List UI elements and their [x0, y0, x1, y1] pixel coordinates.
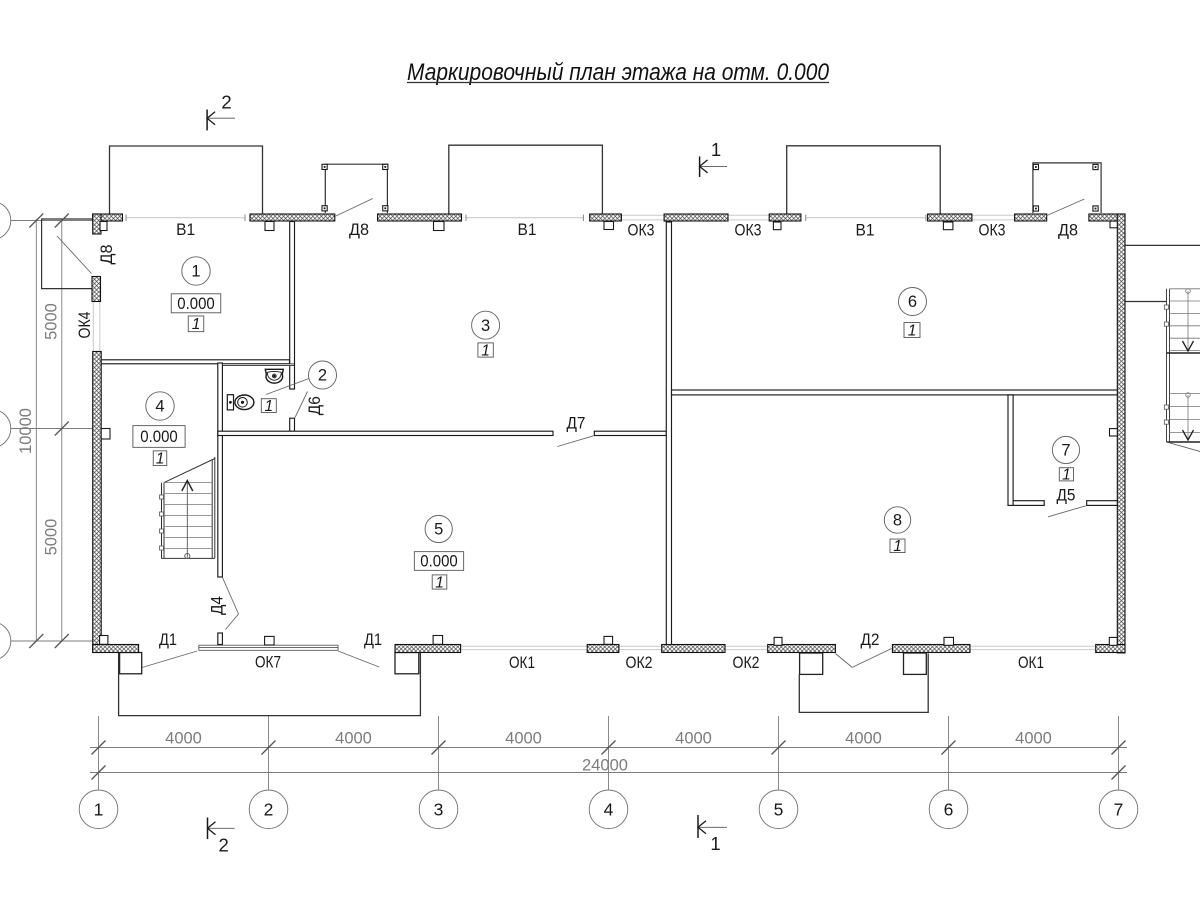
- svg-text:В1: В1: [856, 221, 875, 240]
- svg-text:5000: 5000: [42, 303, 60, 340]
- svg-text:0.000: 0.000: [420, 553, 458, 571]
- svg-text:24000: 24000: [582, 756, 628, 774]
- svg-text:Д8: Д8: [1058, 220, 1078, 239]
- svg-text:4000: 4000: [845, 730, 882, 748]
- svg-text:4: 4: [604, 799, 614, 819]
- svg-text:В1: В1: [518, 220, 537, 239]
- svg-text:ОК3: ОК3: [628, 220, 655, 239]
- svg-text:6: 6: [908, 293, 917, 311]
- svg-text:Д6: Д6: [305, 396, 324, 415]
- svg-text:Д1: Д1: [159, 630, 177, 649]
- svg-text:ОК3: ОК3: [735, 220, 762, 239]
- svg-text:10000: 10000: [17, 408, 35, 454]
- svg-text:Д5: Д5: [1057, 486, 1076, 505]
- svg-text:1: 1: [711, 139, 721, 160]
- svg-text:4000: 4000: [335, 730, 372, 748]
- svg-text:Д1: Д1: [364, 630, 382, 649]
- svg-text:3: 3: [481, 317, 490, 335]
- svg-text:7: 7: [1061, 442, 1070, 460]
- svg-text:ОК7: ОК7: [255, 653, 281, 672]
- svg-text:Д8: Д8: [349, 220, 369, 239]
- svg-text:2: 2: [318, 367, 327, 385]
- svg-text:1: 1: [94, 799, 104, 819]
- svg-text:4000: 4000: [1015, 730, 1052, 748]
- svg-text:1: 1: [710, 833, 720, 854]
- svg-text:Д8: Д8: [97, 245, 116, 265]
- svg-text:ОК1: ОК1: [1018, 653, 1044, 672]
- svg-text:1: 1: [191, 263, 200, 281]
- svg-text:4000: 4000: [505, 730, 542, 748]
- svg-text:4000: 4000: [165, 730, 202, 748]
- svg-text:ОК2: ОК2: [626, 653, 653, 672]
- svg-text:5000: 5000: [42, 519, 60, 556]
- svg-text:0.000: 0.000: [177, 295, 215, 313]
- svg-text:Д2: Д2: [861, 630, 880, 649]
- svg-text:1: 1: [192, 316, 201, 333]
- svg-text:2: 2: [221, 91, 231, 112]
- svg-text:2: 2: [264, 799, 274, 819]
- svg-text:2: 2: [218, 835, 228, 856]
- svg-text:0.000: 0.000: [140, 428, 178, 446]
- svg-text:1: 1: [908, 322, 917, 339]
- svg-text:Д7: Д7: [567, 413, 586, 432]
- svg-text:Д4: Д4: [207, 596, 226, 615]
- svg-text:ОК3: ОК3: [979, 221, 1006, 240]
- svg-text:6: 6: [944, 799, 954, 819]
- svg-text:ОК1: ОК1: [509, 653, 535, 672]
- svg-text:В1: В1: [176, 220, 195, 239]
- svg-text:3: 3: [434, 799, 444, 819]
- svg-text:5: 5: [434, 521, 443, 539]
- svg-text:ОК4: ОК4: [75, 312, 94, 339]
- svg-text:7: 7: [1114, 799, 1124, 819]
- svg-text:1: 1: [156, 451, 165, 468]
- svg-text:4000: 4000: [675, 730, 712, 748]
- svg-text:8: 8: [893, 512, 902, 530]
- svg-text:1: 1: [893, 538, 902, 555]
- svg-text:4: 4: [155, 398, 164, 416]
- svg-text:5: 5: [774, 799, 784, 819]
- svg-text:1: 1: [435, 574, 444, 591]
- svg-text:1: 1: [481, 342, 490, 359]
- svg-text:1: 1: [1062, 467, 1071, 484]
- svg-text:ОК2: ОК2: [733, 653, 760, 672]
- svg-text:1: 1: [264, 398, 273, 415]
